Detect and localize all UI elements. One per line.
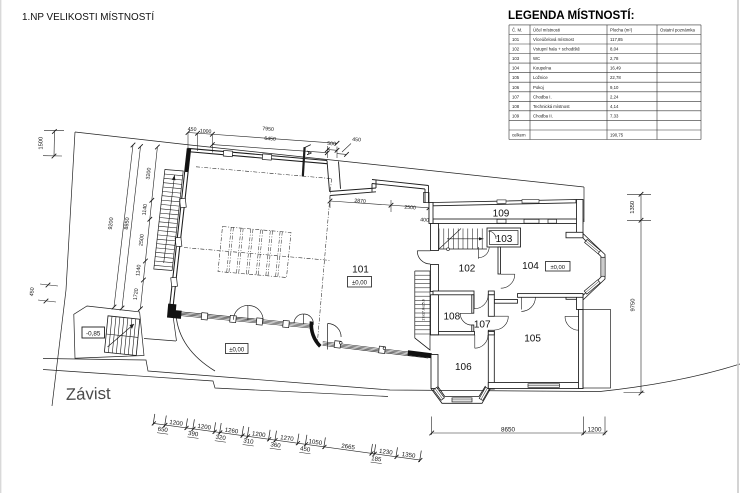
svg-text:102: 102 bbox=[512, 47, 520, 52]
svg-text:4,14: 4,14 bbox=[610, 104, 619, 109]
svg-text:1200: 1200 bbox=[587, 426, 602, 433]
svg-text:±0,00: ±0,00 bbox=[352, 281, 368, 287]
svg-text:107: 107 bbox=[474, 320, 491, 331]
svg-text:7950: 7950 bbox=[262, 126, 274, 133]
svg-text:1000: 1000 bbox=[200, 128, 212, 135]
svg-text:1.NP VELIKOSTI MÍSTNOSTÍ: 1.NP VELIKOSTI MÍSTNOSTÍ bbox=[22, 12, 154, 23]
svg-text:LEGENDA MÍSTNOSTÍ:: LEGENDA MÍSTNOSTÍ: bbox=[508, 9, 634, 22]
svg-text:500: 500 bbox=[327, 141, 336, 148]
svg-text:108: 108 bbox=[512, 104, 520, 109]
svg-text:2870: 2870 bbox=[354, 198, 366, 205]
svg-text:8650: 8650 bbox=[501, 426, 516, 433]
svg-text:109: 109 bbox=[512, 113, 520, 118]
svg-text:107: 107 bbox=[512, 94, 520, 99]
svg-text:Plocha (m²): Plocha (m²) bbox=[610, 28, 633, 33]
svg-text:108: 108 bbox=[443, 312, 460, 323]
svg-text:Závist: Závist bbox=[66, 384, 112, 404]
svg-text:400: 400 bbox=[420, 217, 429, 224]
svg-text:105: 105 bbox=[512, 75, 520, 80]
svg-text:17x17,8x25,6: 17x17,8x25,6 bbox=[421, 299, 425, 321]
svg-text:106: 106 bbox=[455, 362, 472, 373]
svg-text:Účel místnosti: Účel místnosti bbox=[533, 28, 560, 33]
svg-text:Pokoj: Pokoj bbox=[533, 85, 544, 90]
svg-text:104: 104 bbox=[512, 66, 520, 71]
svg-text:103: 103 bbox=[496, 234, 513, 245]
svg-text:1350: 1350 bbox=[630, 201, 636, 214]
svg-text:103: 103 bbox=[512, 56, 520, 61]
svg-text:450: 450 bbox=[29, 287, 36, 297]
svg-text:190,75: 190,75 bbox=[610, 133, 624, 138]
svg-text:105: 105 bbox=[524, 334, 541, 345]
svg-text:2500: 2500 bbox=[404, 205, 416, 212]
svg-text:7,33: 7,33 bbox=[610, 113, 619, 118]
svg-text:A: A bbox=[305, 151, 312, 156]
svg-text:102: 102 bbox=[459, 264, 476, 275]
svg-text:Č. M.: Č. M. bbox=[512, 28, 522, 33]
svg-text:Chodba II.: Chodba II. bbox=[533, 113, 553, 118]
svg-text:450: 450 bbox=[188, 126, 197, 133]
svg-text:Chodba I.: Chodba I. bbox=[533, 94, 552, 99]
svg-text:Koupelna: Koupelna bbox=[533, 66, 552, 71]
svg-text:2,78: 2,78 bbox=[610, 56, 619, 61]
svg-text:117,85: 117,85 bbox=[610, 37, 623, 42]
svg-text:celkem: celkem bbox=[512, 133, 526, 138]
svg-text:16,49: 16,49 bbox=[610, 66, 621, 71]
svg-text:104: 104 bbox=[522, 261, 539, 272]
svg-text:Vstupní hala + schodiště: Vstupní hala + schodiště bbox=[533, 47, 581, 52]
svg-text:WC: WC bbox=[533, 56, 540, 61]
svg-text:Ložnice: Ložnice bbox=[533, 75, 548, 80]
svg-text:9,10: 9,10 bbox=[610, 85, 619, 90]
svg-text:106: 106 bbox=[512, 85, 520, 90]
svg-text:-0,85: -0,85 bbox=[86, 330, 101, 337]
svg-text:450: 450 bbox=[352, 137, 361, 144]
svg-text:2,24: 2,24 bbox=[610, 94, 619, 99]
svg-text:Víceúčelová místnost: Víceúčelová místnost bbox=[533, 37, 575, 42]
svg-text:Ostatní poznámka: Ostatní poznámka bbox=[660, 28, 695, 33]
svg-text:101: 101 bbox=[512, 37, 520, 42]
svg-text:1500: 1500 bbox=[38, 137, 44, 150]
svg-text:6450: 6450 bbox=[264, 136, 276, 143]
svg-text:8,04: 8,04 bbox=[610, 47, 619, 52]
svg-text:101: 101 bbox=[352, 265, 369, 276]
svg-text:±0,00: ±0,00 bbox=[550, 265, 564, 271]
svg-text:109: 109 bbox=[493, 209, 510, 220]
svg-text:Technická místnost: Technická místnost bbox=[533, 104, 570, 109]
svg-text:±0,00: ±0,00 bbox=[229, 347, 245, 353]
svg-text:22,78: 22,78 bbox=[610, 75, 621, 80]
svg-text:9750: 9750 bbox=[631, 299, 637, 312]
